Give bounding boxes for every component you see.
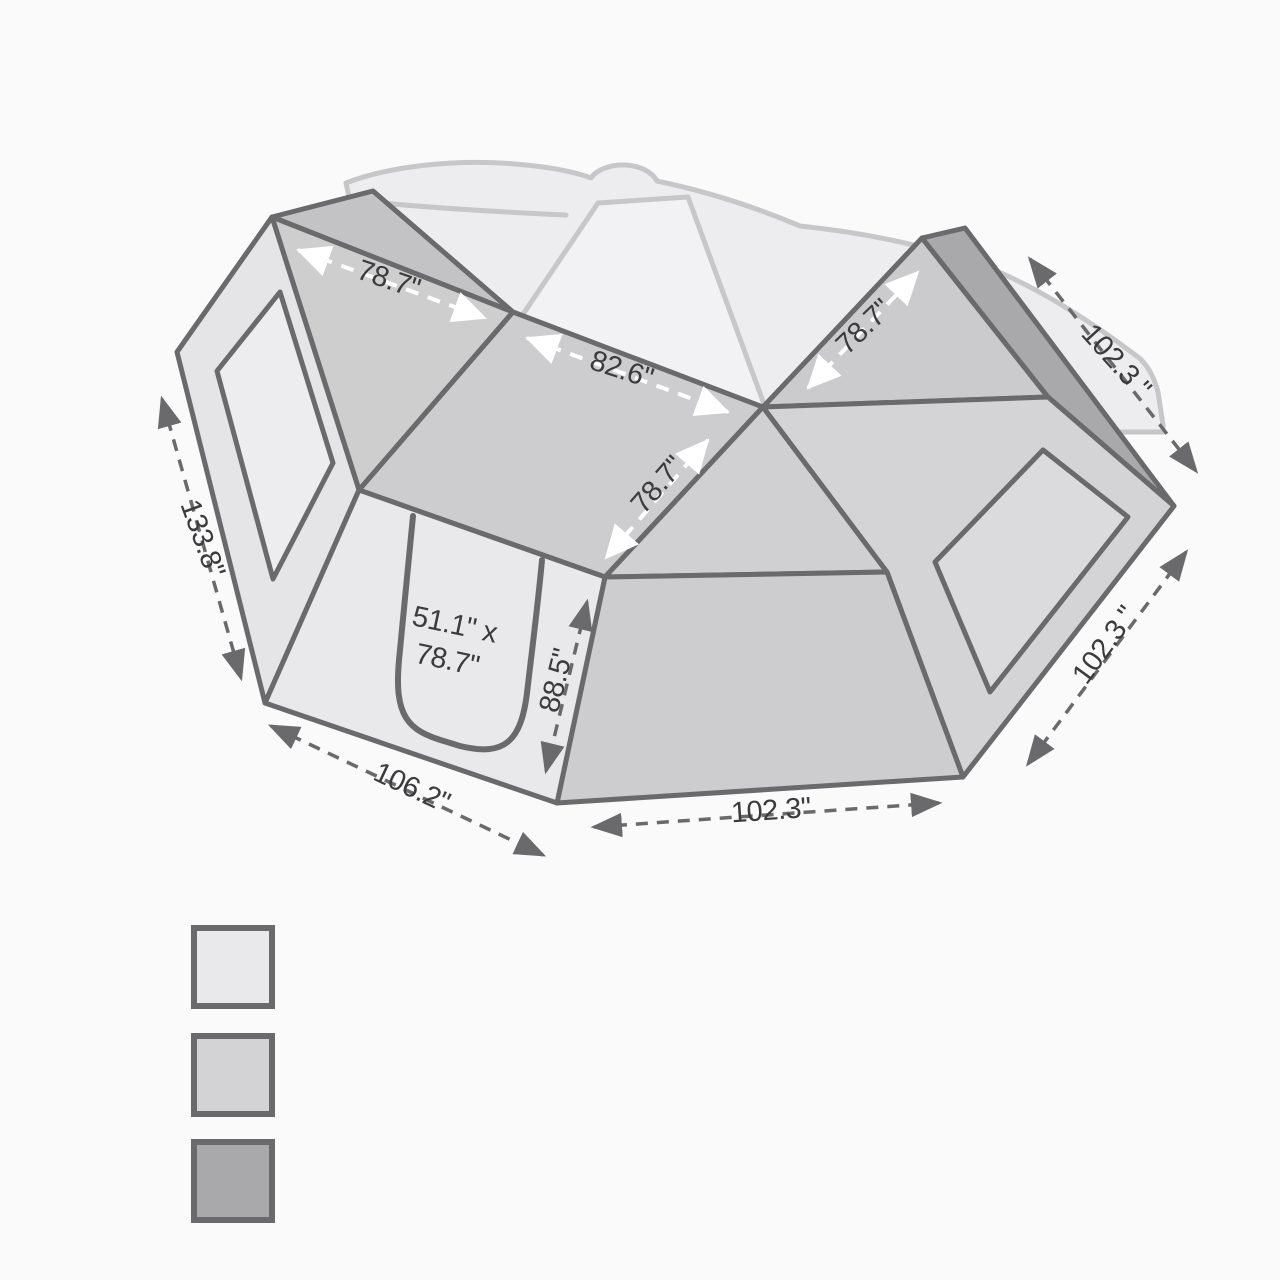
awning-dimension-diagram: 78.7" 82.6" 78.7" 78.7" 102.3 " 102.3 " … bbox=[0, 0, 1280, 1280]
legend-swatch-dark bbox=[194, 1142, 272, 1220]
legend-swatch-light bbox=[194, 928, 272, 1006]
legend-swatch-medium bbox=[194, 1036, 272, 1114]
diagram-canvas: 78.7" 82.6" 78.7" 78.7" 102.3 " 102.3 " … bbox=[0, 0, 1280, 1280]
dim-label-front-right: 102.3" bbox=[730, 792, 812, 830]
panel-front-right bbox=[557, 572, 963, 803]
material-legend bbox=[194, 928, 272, 1220]
